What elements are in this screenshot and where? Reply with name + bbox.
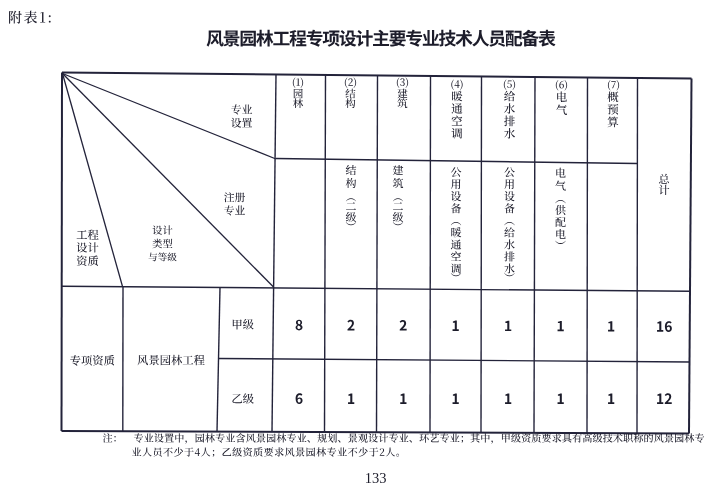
svg-text:133: 133 — [365, 470, 387, 486]
